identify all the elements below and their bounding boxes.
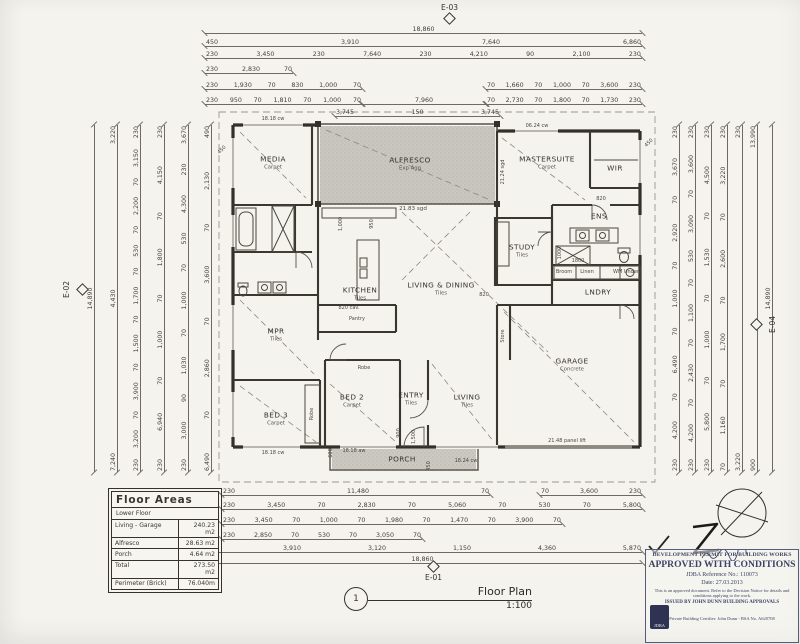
dim-value: 70 [552,517,562,524]
dim-value: 3,090 [688,214,695,234]
drawing-scale: 1:100 [402,601,532,611]
dim-value: 3,745 [335,109,355,116]
dim-value: 150 [410,109,424,116]
dim-value: 7,240 [110,452,117,472]
dim-bottom-row-2: 2303,450702,830705,06070530705,800 [222,500,642,510]
dim-bottom-row-5: 4503,9103,1201,1504,3605,870 [203,543,642,553]
dim-value: 70 [497,502,507,509]
dim-value: 1,150 [452,545,472,552]
dim-value: 230 [205,97,219,104]
study-desk-icon [497,222,509,266]
dim-top-row-4-left: 2301,930708301,00070 [205,80,362,90]
dim-value: 70 [407,502,417,509]
dim-value: 230 [735,125,742,139]
broom-label: Broom [556,269,572,275]
dim-value: 230 [222,517,236,524]
dim-value: 1,000 [318,82,338,89]
dim-value: 4,210 [469,51,489,58]
dim-value: 2,730 [505,97,525,104]
room-label-bed3: BED 3Carpet [264,410,288,426]
window-label-media: 18.18 cw [262,116,285,122]
dim-value: 230 [720,125,727,139]
dim-value: 70 [581,97,591,104]
dim-value: 70 [133,267,140,277]
dim-1000: 1,000 [338,217,344,231]
dim-value: 3,220 [720,166,727,186]
dim-value: 70 [486,97,496,104]
room-label-garage: GARAGEConcrete [556,356,589,372]
area-value: 4.64 m2 [179,549,218,559]
dim-value: 1,700 [720,332,727,352]
dim-value: 70 [688,338,695,348]
dim-value: 6,940 [157,412,164,432]
dim-value: 70 [688,398,695,408]
dim-value: 3,745 [480,109,500,116]
door-820-ens: 820 [596,196,606,202]
dim-top-row-3: 2302,83070 [205,64,293,74]
floor-plan-sheet: MEDIACarpet ALFRESCOExp Agg MASTERSUITEC… [0,0,800,644]
dim-value: 230 [628,51,642,58]
dim-value: 2,830 [241,66,261,73]
dim-value: 230 [222,488,236,495]
dim-value: 3,910 [282,545,302,552]
dim-value: 1,000 [181,291,188,311]
dim-value: 70 [348,532,358,539]
linen-cupboard-icon [272,206,294,252]
dim-value: 230 [157,125,164,139]
dim-value: 70 [540,488,550,495]
elevation-label: E-03 [441,3,458,12]
stamp-note: This is an approved document. Refer to t… [646,588,798,599]
table-row: Alfresco 28.63 m2 [112,538,218,549]
shower-dim-1000: 1000 [557,247,563,260]
dim-value: 70 [290,532,300,539]
dim-value: 230 [205,51,219,58]
dim-value: 70 [181,328,188,338]
floor-areas-title: Floor Areas [112,492,218,508]
dim-value: 1,700 [133,286,140,306]
stamp-issuer: ISSUED BY JOHN DUNN BUILDING APPROVALS [646,600,798,605]
ensuite-fixtures-icon [556,228,630,265]
dim-450-porch: 450 [426,461,432,471]
dim-value: 5,800 [704,412,711,432]
dim-value: 230 [205,82,219,89]
dim-value: 230 [704,125,711,139]
table-row: Porch 4.64 m2 [112,549,218,560]
dim-value: 70 [720,462,727,472]
dim-value: 3,450 [266,502,286,509]
dim-value: 230 [222,532,236,539]
dim-900: 900 [396,428,402,438]
garage-door-label: 21.48 panel lift [548,438,586,444]
window-label-living: 18.24 cw [455,458,478,464]
dim-value: 2,430 [688,363,695,383]
dim-top-row-6: 3,7451503,745 [335,107,500,117]
dim-value: 70 [672,195,679,205]
dim-value: 2,600 [720,249,727,269]
dim-value: 70 [204,223,211,233]
room-label-bed2: BED 2Carpet [340,392,364,408]
dim-value: 70 [688,278,695,288]
cavity-door-label: 820 cav. [338,305,359,311]
dim-value: 230 [418,51,432,58]
dim-right-col-3: 2305,800701,000701,530704,500230 [702,125,712,472]
dim-value: 230 [181,163,188,177]
dim-value: 230 [181,458,188,472]
room-label-porch: PORCH [388,455,415,464]
dim-left-total: 14,890 [85,125,95,472]
dim-600: 600 [328,448,334,458]
room-label-mpr: MPRTiles [268,326,285,342]
dim-value: 3,120 [367,545,387,552]
elevation-marker-e04: E-04 [752,320,781,329]
dim-value: 90 [525,51,535,58]
dim-value: 4,200 [688,423,695,443]
dim-value: 70 [581,82,591,89]
dim-value: 490 [204,125,211,139]
dim-value: 3,220 [110,125,117,145]
dim-value: 4,430 [110,288,117,308]
dim-value: 1,100 [688,303,695,323]
dim-value: 70 [422,517,432,524]
dim-value: 1,660 [505,82,525,89]
dim-value: 2,100 [572,51,592,58]
drawing-title: Floor Plan [402,585,532,598]
dim-value: 4,150 [157,165,164,185]
dim-value: 450 [205,39,219,46]
dim-value: 13,990 [750,125,757,149]
dim-value: 1,470 [449,517,469,524]
dim-right-col-2: 2304,200702,430701,100705303,090703,6002… [686,125,696,472]
dim-value: 70 [720,212,727,222]
dim-value: 70 [291,517,301,524]
dim-value: 70 [582,502,592,509]
dim-top-row-2: 2303,4502307,6402304,210902,100230 [205,49,642,59]
dim-value: 2,860 [204,358,211,378]
area-label: Alfresco [112,538,179,548]
dim-value: 70 [704,294,711,304]
dim-value: 3,600 [688,154,695,174]
dim-value: 70 [672,326,679,336]
linen-label: Linen [580,269,594,275]
dim-top-total: 18,860 [205,24,642,34]
dim-top-row-5-left: 230950701,810701,00070 [205,95,362,105]
dim-value: 70 [720,379,727,389]
room-label-ens: ENS [591,212,607,221]
dim-value: 3,900 [514,517,534,524]
dim-value: 3,450 [254,517,274,524]
dim-value: 3,670 [181,125,188,145]
dim-value: 530 [181,232,188,246]
dim-1500: 1,500 [411,430,417,444]
dim-value: 70 [704,211,711,221]
dim-value: 70 [704,376,711,386]
area-label: Porch [112,549,179,559]
alfresco-side-door-label: 21.24 sgd [500,160,506,185]
robe-label-bed3: Robe [309,408,315,421]
dim-value: 530 [688,249,695,263]
robe-label-bed2: Robe [358,365,371,371]
dim-value: 90 [181,393,188,403]
dim-right-col-4: 701,160701,700702,600703,220230 [718,125,728,472]
floor-areas-subtitle: Lower Floor [112,508,218,520]
dim-value: 230 [205,66,219,73]
dim-value: 3,900 [133,381,140,401]
dim-value: 230 [688,458,695,472]
pantry-label: Pantry [349,316,365,322]
window-label-bed3: 18.18 cw [262,450,285,456]
area-value: 76.040m [179,579,218,589]
dim-value: 6,860 [622,39,642,46]
area-label: Living - Garage [112,520,179,537]
dim-value: 3,670 [672,157,679,177]
dim-value: 1,810 [272,97,292,104]
floor-areas-rows: Living - Garage 240.23 m2 Alfresco 28.63… [112,520,218,589]
dim-950: 950 [369,219,375,229]
dim-value: 7,640 [481,39,501,46]
dim-value: 6,490 [672,354,679,374]
dim-left-col-6: 6,490702,860703,600702,130490 [202,125,212,472]
approval-stamp: DEVELOPMENT PERMIT FOR BUILDING WORKS AP… [645,549,799,643]
door-820-study: 820 [479,292,489,298]
dim-value: 1,930 [233,82,253,89]
dim-value: 950 [229,97,243,104]
dim-value: 230 [133,125,140,139]
dim-value: 70 [181,263,188,273]
dim-value: 4,500 [704,165,711,185]
stamp-date: Date: 27.03.2013 [646,580,798,586]
room-label-alfresco: ALFRESCOExp Agg [389,155,431,171]
dim-value: 70 [352,82,362,89]
area-value: 273.50 m2 [179,561,218,578]
dim-value: 4,300 [181,194,188,214]
shower-dim-1800: 1800 [572,258,585,264]
dim-value: 70 [533,82,543,89]
dim-value: 1,000 [704,330,711,350]
dim-right-col-1: 2304,200706,490701,000702,920703,670230 [670,125,680,472]
dim-value: 70 [157,211,164,221]
dim-value: 5,870 [622,545,642,552]
drawing-number-bubble: 1 [344,587,368,611]
dim-value: 1,000 [322,97,342,104]
dim-value: 5,060 [447,502,467,509]
dim-right-total: 14,890 [763,125,773,472]
dim-bottom-total: 18,860 [203,554,642,564]
dim-left-col-5: 2303,000901,030701,000705304,3002303,670 [179,125,189,472]
dim-value: 70 [302,97,312,104]
dim-value: 230 [672,125,679,139]
dim-value: 1,000 [157,330,164,350]
room-label-laundry: LNDRY [585,288,611,297]
room-label-media: MEDIACarpet [260,154,286,170]
dim-value: 530 [317,532,331,539]
dim-value: 3,600 [599,82,619,89]
dim-value: 3,220 [735,452,742,472]
dim-value: 11,480 [346,488,370,495]
dim-value: 6,490 [204,452,211,472]
stamp-reference: JDBA Reference No.: 110073 [646,572,798,578]
dim-value: 70 [133,177,140,187]
alfresco-door-label: 21.83 sgd [399,206,427,212]
dim-value: 2,920 [672,223,679,243]
window-label-porch: 18.18 aw [342,448,365,454]
dim-value: 70 [316,502,326,509]
bath-icon [236,208,256,250]
dim-value: 4,360 [537,545,557,552]
dim-value: 230 [628,82,642,89]
dim-value: 2,200 [133,196,140,216]
room-label-mastersuite: MASTERSUITECarpet [519,154,575,170]
dim-value: 70 [672,261,679,271]
dim-value: 3,450 [255,51,275,58]
elevation-diamond-icon [443,12,456,25]
dim-value: 3,150 [133,148,140,168]
dim-value: 3,200 [133,429,140,449]
room-label-entry: ENTRYTiles [398,390,424,406]
dim-value: 70 [157,294,164,304]
dim-value: 70 [356,517,366,524]
dim-value: 7,960 [414,97,434,104]
dim-value: 1,030 [181,355,188,375]
dim-value: 3,600 [204,265,211,285]
dim-value: 5,800 [622,502,642,509]
dim-value: 530 [133,244,140,258]
dim-right-col-6: 90013,990 [748,125,758,472]
dim-value: 230 [688,125,695,139]
dim-top-row-4-right: 701,660701,000703,600230 [486,80,642,90]
dim-value: 3,050 [375,532,395,539]
dim-value: 230 [628,97,642,104]
north-point-icon [693,489,768,553]
table-row: Perimeter (Brick) 76.040m [112,579,218,589]
elevation-marker-e03: E-03 [441,3,458,23]
elevation-label: E-02 [62,281,71,298]
dim-value: 830 [290,82,304,89]
dim-value: 230 [312,51,326,58]
dim-value: 7,640 [362,51,382,58]
room-label-kitchen: KITCHENTiles [343,285,377,301]
dim-top-row-1: 4503,9107,6406,860 [205,37,642,47]
jdba-logo: JDBA [650,605,669,629]
dim-value: 70 [480,488,490,495]
area-value: 240.23 m2 [179,520,218,537]
dim-value: 1,000 [672,289,679,309]
dim-value: 70 [204,316,211,326]
elevation-diamond-icon [750,318,763,331]
dim-value: 230 [672,458,679,472]
room-label-wir: WIR [607,164,623,173]
dim-value: 1,160 [720,415,727,435]
dim-left-col-2: 7,2404,4303,220 [108,125,118,472]
elevation-label: E-01 [425,573,442,582]
dim-left-col-3: 2303,200703,900701,500701,70070530702,20… [131,125,141,472]
dim-right-col-5: 3,220230 [733,125,743,472]
dim-value: 230 [222,502,236,509]
table-row: Total 273.50 m2 [112,561,218,579]
table-row: Living - Garage 240.23 m2 [112,520,218,538]
washing-machine-label: WM Under [613,269,639,275]
dim-value: 70 [133,362,140,372]
dim-value: 70 [283,66,293,73]
dim-value: 70 [533,97,543,104]
area-label: Perimeter (Brick) [112,579,179,589]
dim-value: 1,800 [552,97,572,104]
dim-value: 70 [487,517,497,524]
dim-value: 230 [628,488,642,495]
dim-value: 70 [267,82,277,89]
room-label-living: LIVINGTiles [454,392,481,408]
dim-bottom-row-4: 2302,85070530703,05070 [222,530,422,540]
dim-value: 1,500 [133,333,140,353]
dim-left-col-4: 2306,940701,000701,800704,150230 [155,125,165,472]
dim-value: 1,000 [552,82,572,89]
dim-value: 70 [204,410,211,420]
dim-value: 230 [157,458,164,472]
dim-value: 3,910 [340,39,360,46]
room-label-study: STUDYTiles [509,242,535,258]
area-value: 28.63 m2 [179,538,218,548]
dim-bottom-row-1-right: 703,600230 [540,486,642,496]
dim-value: 70 [133,314,140,324]
dim-value: 1,530 [704,247,711,267]
dim-value: 70 [688,189,695,199]
dim-top-row-5-right: 702,730701,800701,730230 [486,95,642,105]
area-label: Total [112,561,179,578]
elevation-diamond-icon [427,560,440,573]
dim-value: 2,130 [204,171,211,191]
elevation-marker-e01: E-01 [425,562,442,582]
dim-value: 530 [537,502,551,509]
store-label: Store [500,329,506,342]
window-label-master: 06.24 cw [526,123,549,129]
dim-value: 70 [412,532,422,539]
dim-value: 230 [133,458,140,472]
dim-value: 1,730 [599,97,619,104]
dim-value: 70 [253,97,263,104]
dim-value: 70 [157,376,164,386]
dim-top-row-5-mid: 7,960 [362,95,486,105]
dim-bottom-row-1-left: 23011,48070 [222,486,490,496]
vanity-icon [238,282,286,296]
dim-value: 4,200 [672,420,679,440]
dim-value: 70 [133,410,140,420]
dim-value: 70 [133,225,140,235]
floor-areas-table: Floor Areas Lower Floor Living - Garage … [111,491,219,590]
dim-value: 70 [672,392,679,402]
dim-value: 3,000 [181,420,188,440]
dim-value: 1,980 [384,517,404,524]
dim-value: 2,830 [357,502,377,509]
dim-value: 230 [704,458,711,472]
elevation-diamond-icon [76,283,89,296]
dim-value: 1,000 [319,517,339,524]
dim-value: 1,800 [157,247,164,267]
dim-value: 900 [750,458,757,472]
elevation-marker-e02: E-02 [58,285,87,294]
dim-value: 2,850 [253,532,273,539]
room-label-living-dining: LIVING & DININGTiles [407,280,474,296]
dim-value: 3,600 [579,488,599,495]
dim-value: 70 [720,296,727,306]
elevation-label: E-04 [768,316,777,333]
dim-value: 70 [486,82,496,89]
dim-bottom-row-3: 2303,450701,000701,980701,470703,90070 [222,515,562,525]
